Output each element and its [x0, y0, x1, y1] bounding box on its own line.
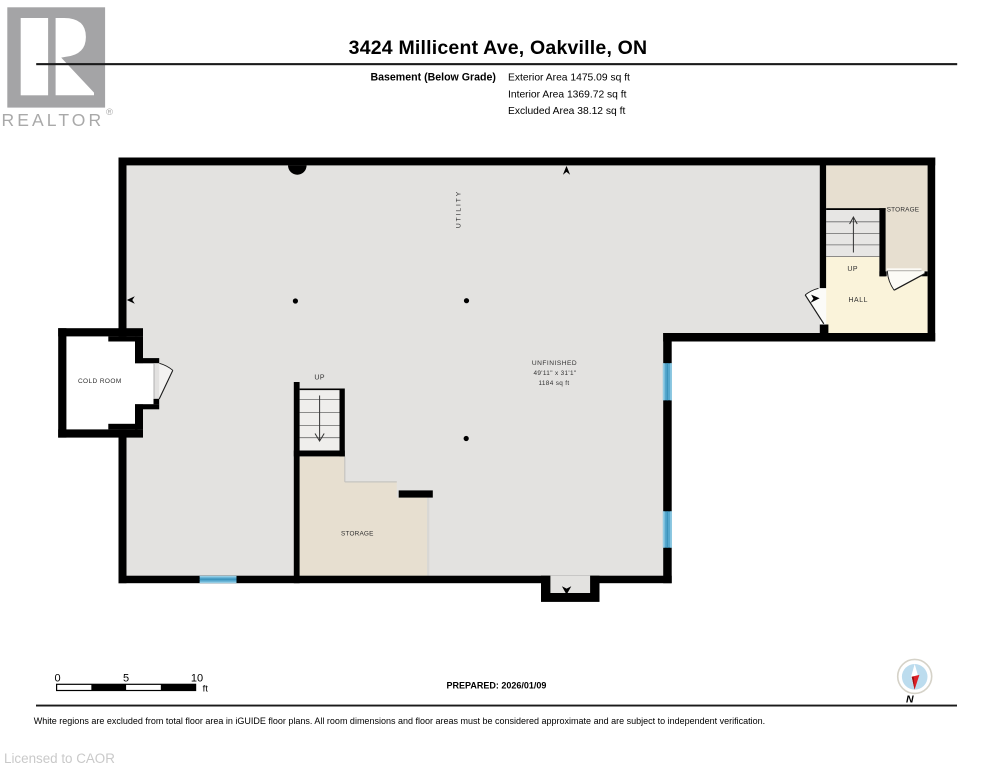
svg-text:N: N: [906, 694, 914, 706]
svg-text:10: 10: [191, 672, 203, 684]
svg-text:Licensed to CAOR: Licensed to CAOR: [4, 751, 115, 766]
svg-text:Interior Area 1369.72 sq ft: Interior Area 1369.72 sq ft: [508, 89, 627, 100]
svg-text:REALTOR: REALTOR: [2, 110, 105, 130]
svg-text:UTILITY: UTILITY: [456, 190, 463, 228]
svg-text:3424 Millicent Ave, Oakville,: 3424 Millicent Ave, Oakville, ON: [349, 37, 648, 59]
svg-text:0: 0: [54, 672, 60, 684]
svg-text:STORAGE: STORAGE: [887, 206, 920, 213]
svg-text:5: 5: [123, 672, 129, 684]
svg-text:White regions are excluded fro: White regions are excluded from total fl…: [34, 716, 765, 726]
svg-text:Excluded Area 38.12 sq ft: Excluded Area 38.12 sq ft: [508, 106, 625, 117]
svg-text:COLD ROOM: COLD ROOM: [78, 378, 122, 385]
svg-text:Exterior Area 1475.09 sq ft: Exterior Area 1475.09 sq ft: [508, 73, 630, 84]
svg-text:Basement (Below Grade): Basement (Below Grade): [370, 72, 495, 84]
svg-text:1184 sq ft: 1184 sq ft: [538, 380, 569, 387]
svg-text:ft: ft: [203, 684, 209, 695]
svg-text:UP: UP: [847, 266, 858, 273]
svg-text:®: ®: [106, 107, 113, 118]
svg-text:STORAGE: STORAGE: [341, 531, 374, 538]
svg-text:UP: UP: [314, 375, 325, 382]
svg-text:PREPARED: 2026/01/09: PREPARED: 2026/01/09: [447, 680, 547, 690]
svg-text:UNFINISHED: UNFINISHED: [532, 360, 577, 367]
svg-text:49'11" x 31'1": 49'11" x 31'1": [533, 370, 576, 377]
svg-text:HALL: HALL: [848, 297, 868, 304]
